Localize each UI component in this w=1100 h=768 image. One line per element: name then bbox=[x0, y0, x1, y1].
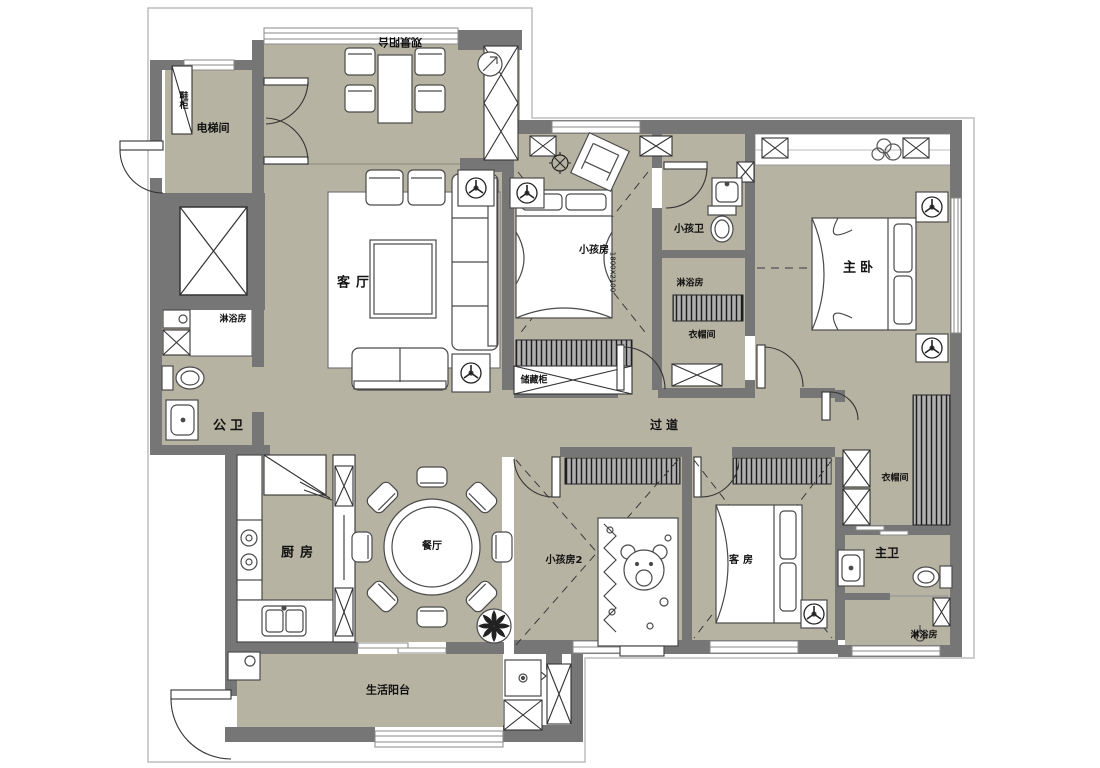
sofa-bottom bbox=[352, 348, 448, 390]
stool bbox=[345, 48, 375, 75]
stool bbox=[415, 85, 445, 112]
sink bbox=[838, 550, 864, 586]
kids2-bed bbox=[598, 518, 678, 656]
stool bbox=[345, 85, 375, 112]
floor-plan-drawing bbox=[0, 0, 1100, 768]
kitchen-sink bbox=[262, 606, 306, 636]
shoe-cabinet-box bbox=[172, 66, 192, 134]
living-furniture bbox=[328, 170, 500, 392]
kids1-bed bbox=[516, 190, 612, 318]
armchair bbox=[366, 170, 403, 205]
stove bbox=[237, 520, 262, 580]
kitchen-slider-door bbox=[358, 643, 446, 653]
balcony-table bbox=[378, 55, 412, 123]
sink bbox=[712, 178, 742, 206]
kitchen-cabinet bbox=[264, 455, 332, 500]
balcony-sink bbox=[228, 652, 260, 680]
small-sink bbox=[163, 310, 190, 328]
exhaust-fan-icon bbox=[478, 52, 502, 76]
stool bbox=[415, 48, 445, 75]
toilet bbox=[162, 366, 204, 390]
armchair bbox=[408, 170, 445, 205]
storage-cabinet bbox=[514, 366, 632, 394]
toilet bbox=[913, 566, 952, 588]
floor-plan: 观景阳台 鞋柜 电梯间 淋浴房 公卫 客厅 厨房 餐厅 生活阳台 小孩房 180… bbox=[0, 0, 1100, 768]
master-bed bbox=[812, 218, 916, 330]
elevator-shaft bbox=[180, 207, 247, 295]
guest-bed bbox=[716, 505, 802, 623]
washing-machine bbox=[505, 660, 546, 696]
service-balcony-door bbox=[171, 690, 231, 759]
dining-table bbox=[384, 499, 480, 595]
pinwheel-decor bbox=[477, 609, 511, 643]
vanity bbox=[166, 400, 198, 440]
coffee-table bbox=[370, 240, 436, 318]
